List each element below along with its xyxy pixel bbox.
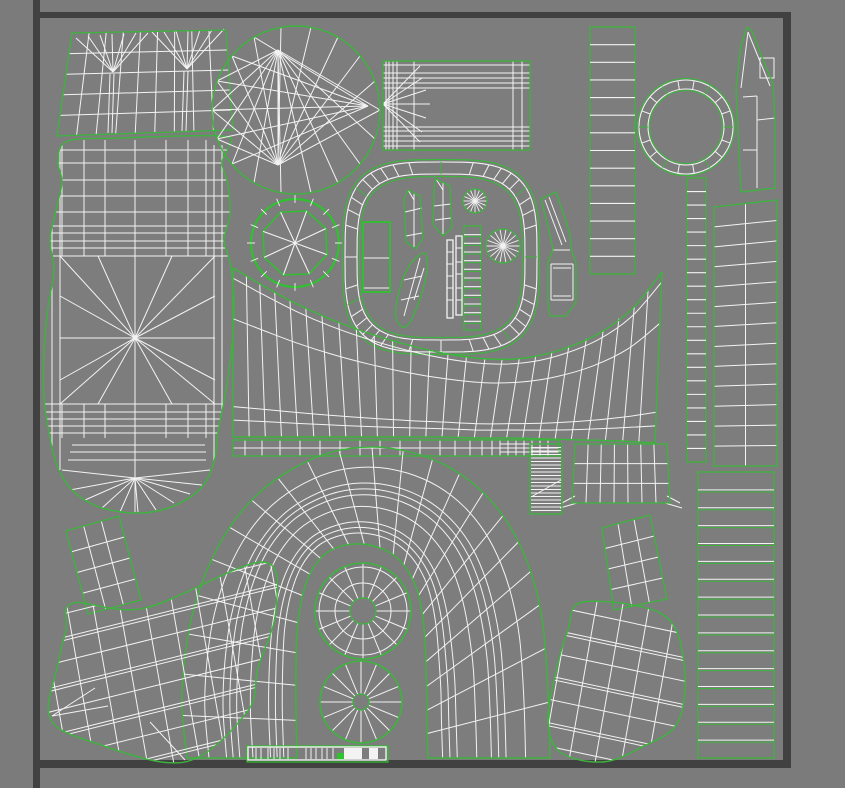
uv-canvas[interactable] <box>0 0 845 788</box>
island-star-burst-small[interactable] <box>463 189 487 213</box>
island-vent-grille[interactable] <box>530 444 562 514</box>
uv-editor-viewport[interactable] <box>0 0 845 788</box>
